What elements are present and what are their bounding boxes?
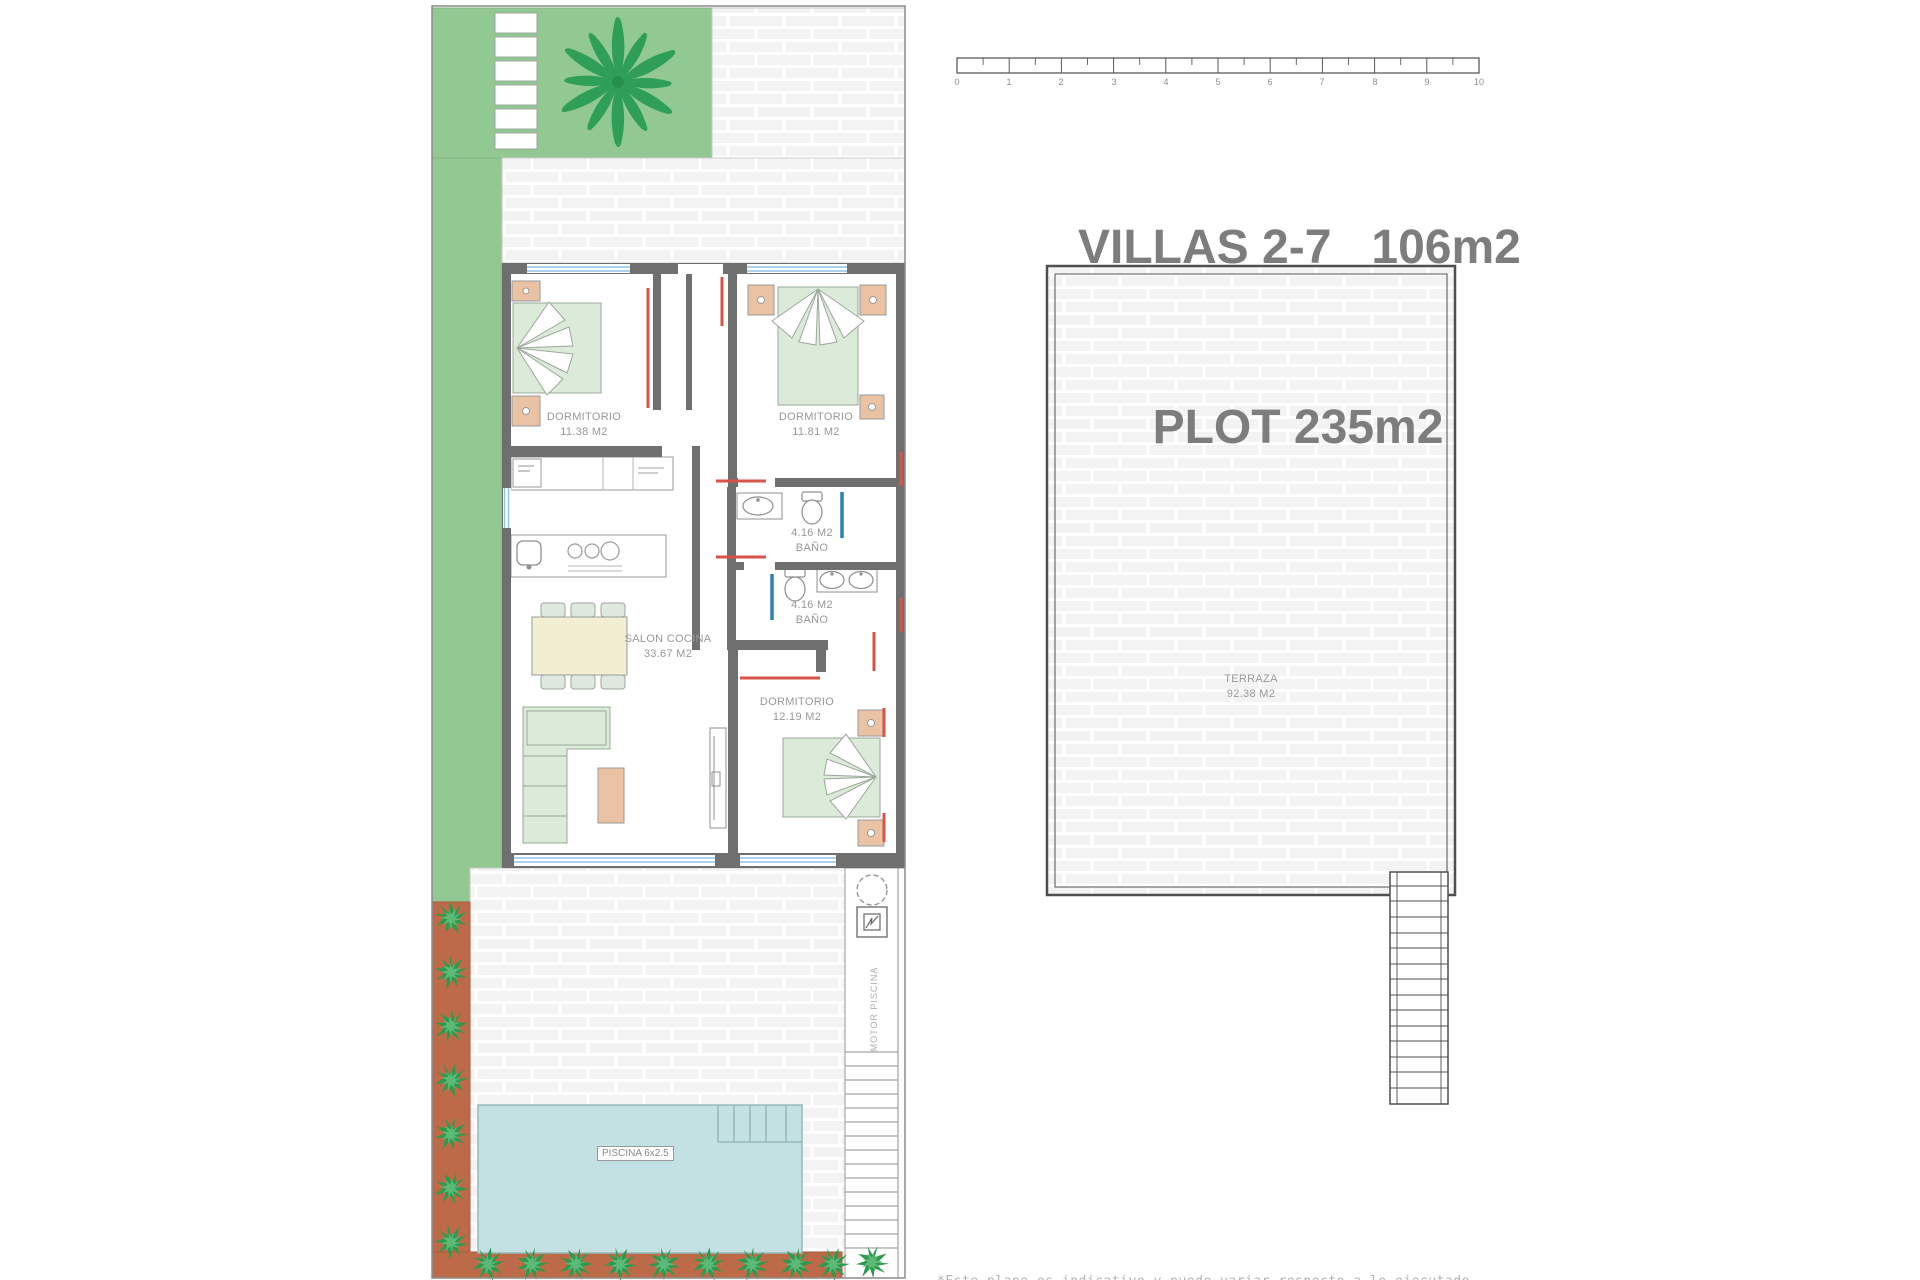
room-name: SALON COCINA [625, 632, 712, 647]
scale-tick-label: 4 [1155, 77, 1177, 87]
terrace-stairs [1390, 872, 1448, 1104]
room-label-dormitorio-1: DORMITORIO 11.38 M2 [547, 410, 621, 440]
room-name: DORMITORIO [779, 410, 853, 425]
scale-tick-label: 6 [1259, 77, 1281, 87]
room-name: DORMITORIO [547, 410, 621, 425]
stepping-stones [495, 13, 537, 149]
room-area: 33.67 M2 [625, 647, 712, 662]
room-label-terraza: TERRAZA 92.38 M2 [1224, 672, 1277, 702]
room-label-bano-2: 4.16 M2 BAÑO [791, 598, 833, 628]
room-label-dormitorio-2: DORMITORIO 11.81 M2 [779, 410, 853, 440]
room-area: 11.81 M2 [779, 425, 853, 440]
kitchen-counter [511, 457, 673, 490]
pool-label: PISCINA 6x2.5 [597, 1146, 674, 1161]
scale-tick-label: 1 [998, 77, 1020, 87]
bed-2 [772, 287, 864, 405]
floor-plan-sheet: VILLAS 2-7 106m2 PLOT 235m2 0 1 2 3 4 5 … [0, 0, 1920, 1280]
room-area: 92.38 M2 [1224, 687, 1277, 702]
room-area: 4.16 M2 [791, 598, 833, 613]
scale-tick-label: 2 [1050, 77, 1072, 87]
electrical-box-icon [857, 907, 887, 937]
room-area: 12.19 M2 [760, 710, 834, 725]
disclaimer-note: *Este plano es indicativo y puede variar… [937, 1234, 1520, 1280]
room-label-bano-1: 4.16 M2 BAÑO [791, 526, 833, 556]
pool [478, 1105, 802, 1253]
scale-tick-label: 8 [1364, 77, 1386, 87]
plan-title: VILLAS 2-7 106m2 PLOT 235m2 [1078, 98, 1518, 518]
room-name: BAÑO [791, 541, 833, 556]
room-name: BAÑO [791, 613, 833, 628]
room-area: 11.38 M2 [547, 425, 621, 440]
tv-unit [710, 728, 726, 828]
room-label-dormitorio-3: DORMITORIO 12.19 M2 [760, 695, 834, 725]
kitchen-island [511, 535, 666, 577]
bed-1 [513, 302, 601, 395]
room-label-salon-cocina: SALON COCINA 33.67 M2 [625, 632, 712, 662]
room-name: DORMITORIO [760, 695, 834, 710]
coffee-table [598, 768, 624, 823]
room-area: 4.16 M2 [791, 526, 833, 541]
bath1-vanity [737, 493, 782, 519]
scale-tick-label: 5 [1207, 77, 1229, 87]
scale-tick-label: 0 [946, 77, 968, 87]
plan-title-line2: PLOT 235m2 [1078, 398, 1518, 458]
dining-set [532, 603, 627, 689]
scale-tick-label: 3 [1103, 77, 1125, 87]
scale-bar [957, 58, 1479, 73]
scale-tick-label: 9 [1416, 77, 1438, 87]
bath2-vanity [817, 568, 877, 592]
paving-top [712, 8, 905, 158]
scale-tick-label: 7 [1311, 77, 1333, 87]
scale-tick-label: 10 [1468, 77, 1490, 87]
bath2-toilet [785, 568, 805, 601]
pool-motor-label: MOTOR PISCINA [869, 939, 879, 1079]
room-name: TERRAZA [1224, 672, 1277, 687]
floor-plan-drawing [0, 0, 1920, 1280]
plan-title-line1: VILLAS 2-7 106m2 [1078, 218, 1518, 278]
disclaimer-line-es: *Este plano es indicativo y puede variar… [937, 1272, 1520, 1280]
paving-driveway [502, 158, 905, 263]
bed-3 [783, 734, 880, 819]
bath1-toilet [802, 492, 822, 524]
